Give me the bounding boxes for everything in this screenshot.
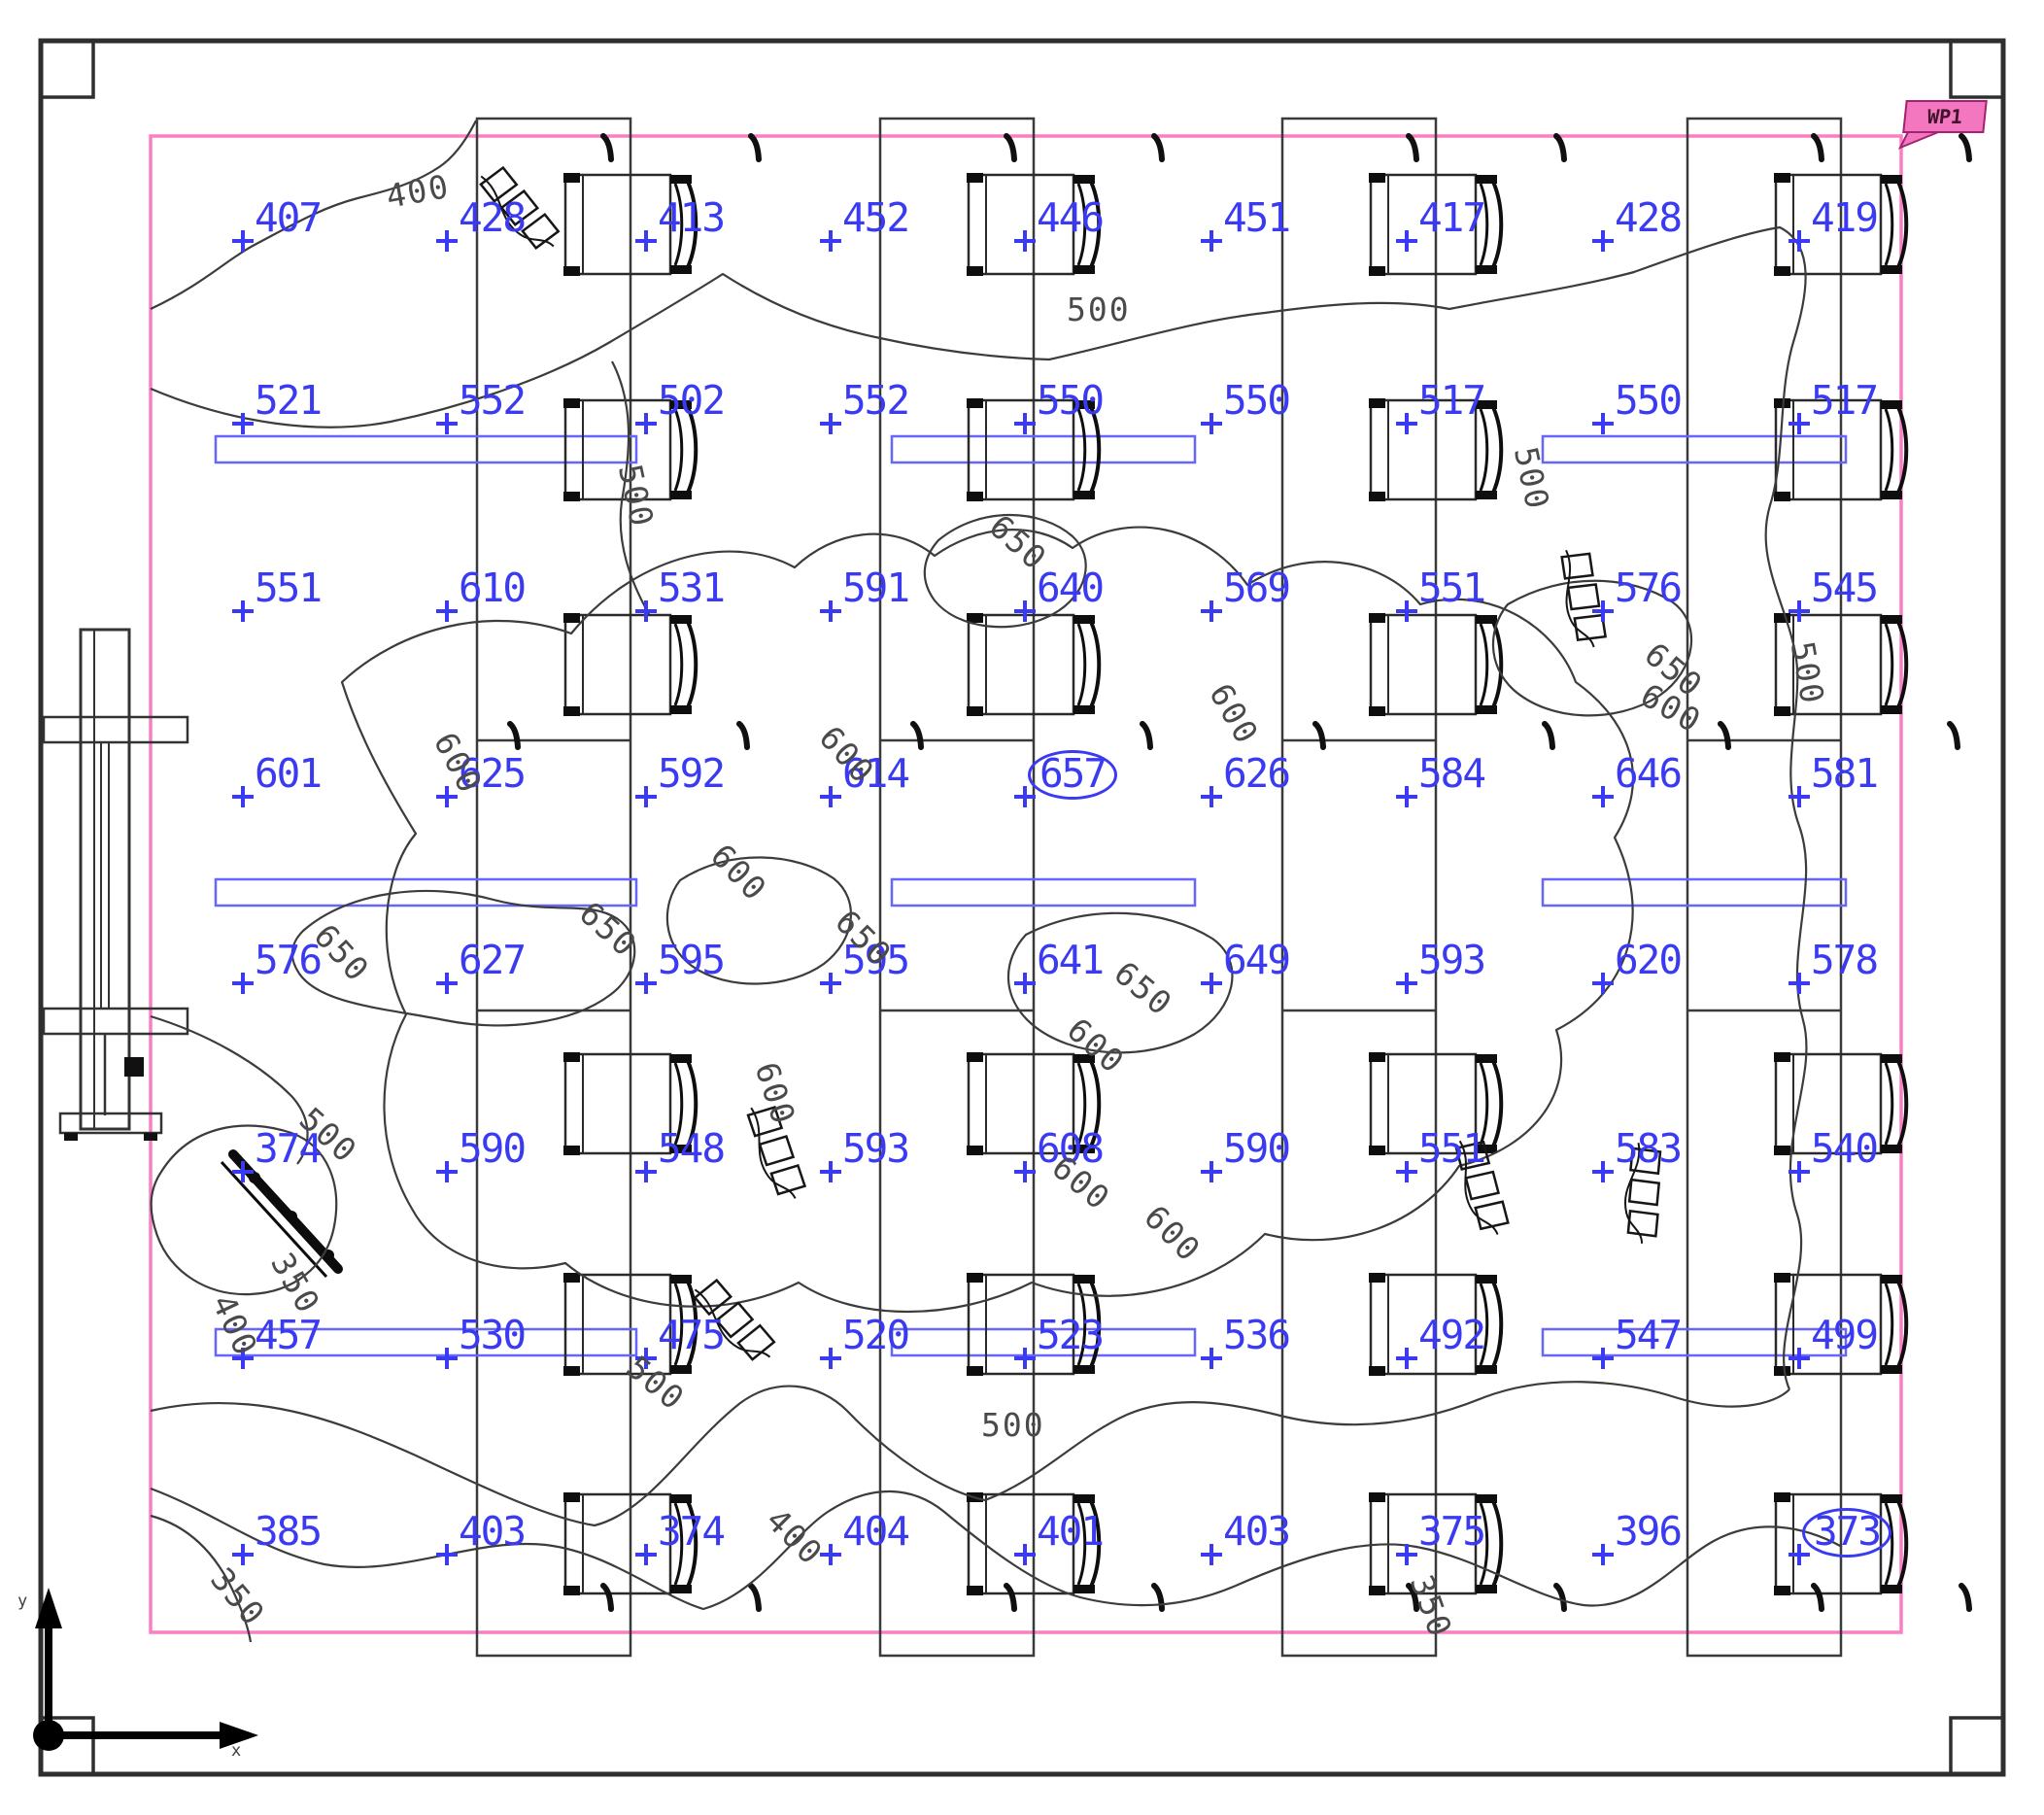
- chair-scribbles: [478, 159, 1694, 1371]
- calc-surface-tag: WP1: [1902, 100, 1988, 133]
- shelf-bars: [216, 436, 1846, 1355]
- room-walls: [41, 41, 2003, 1774]
- foot-ticks: [510, 136, 1969, 1609]
- isolux-contours: [151, 120, 1842, 1642]
- axis-y-label: y: [17, 1593, 27, 1610]
- wall-equipment: [44, 630, 187, 1141]
- floorplan-drawing: [0, 0, 2044, 1815]
- floorplan-canvas: 4074284134524464514174284195215525025525…: [0, 0, 2044, 1815]
- axis-x-label: x: [231, 1743, 241, 1760]
- origin-axes-icon: [33, 1588, 258, 1751]
- desks: [563, 173, 1906, 1595]
- desk-groups: [477, 119, 1841, 1656]
- calc-surface-tag-text: WP1: [1926, 105, 1964, 128]
- calc-area-outline: [151, 136, 1901, 1632]
